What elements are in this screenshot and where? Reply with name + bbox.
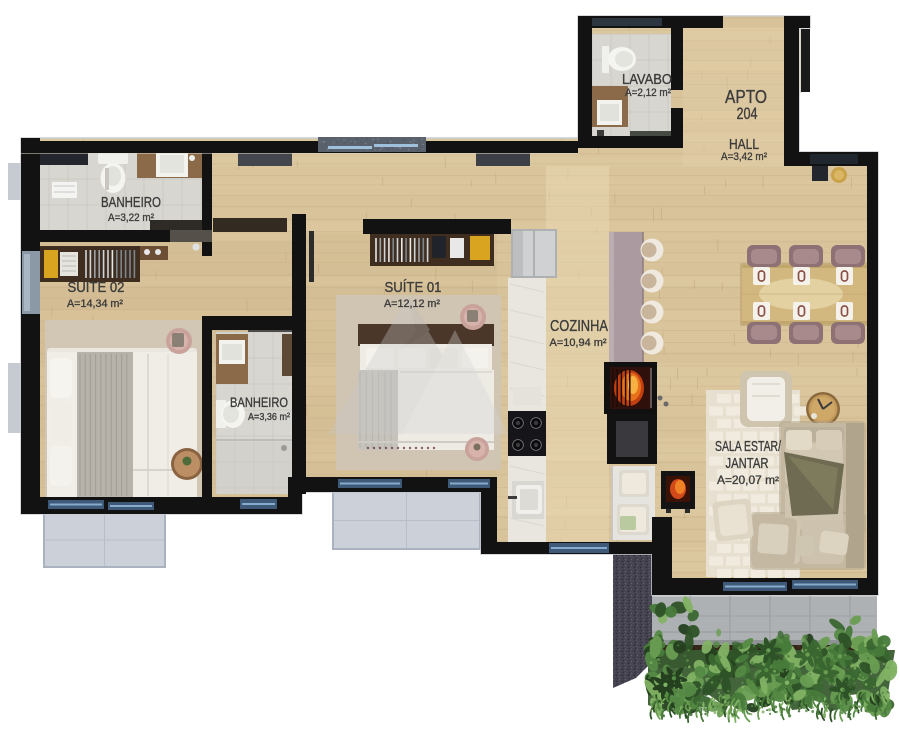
svg-text:BANHEIRO: BANHEIRO (230, 394, 288, 410)
svg-text:APTO: APTO (725, 86, 767, 107)
svg-text:A=20,07 m²: A=20,07 m² (717, 475, 779, 487)
svg-text:SUÍTE 01: SUÍTE 01 (385, 279, 442, 296)
svg-text:JANTAR: JANTAR (726, 456, 769, 472)
svg-text:A=3,22 m²: A=3,22 m² (108, 212, 154, 224)
svg-text:A=3,36 m²: A=3,36 m² (248, 411, 290, 423)
svg-text:BANHEIRO: BANHEIRO (101, 194, 161, 211)
svg-text:SALA ESTAR/: SALA ESTAR/ (715, 439, 782, 455)
svg-text:LAVABO: LAVABO (622, 72, 672, 88)
svg-text:COZINHA: COZINHA (550, 318, 608, 335)
svg-text:204: 204 (737, 105, 758, 123)
svg-text:A=3,42 m²: A=3,42 m² (721, 151, 767, 163)
svg-text:A=12,12 m²: A=12,12 m² (384, 298, 440, 310)
svg-text:SUÍTE 02: SUÍTE 02 (68, 279, 125, 296)
svg-text:A=2,12 m²: A=2,12 m² (625, 87, 671, 99)
svg-text:A=10,94 m²: A=10,94 m² (550, 337, 607, 349)
svg-text:A=14,34 m²: A=14,34 m² (67, 298, 123, 310)
